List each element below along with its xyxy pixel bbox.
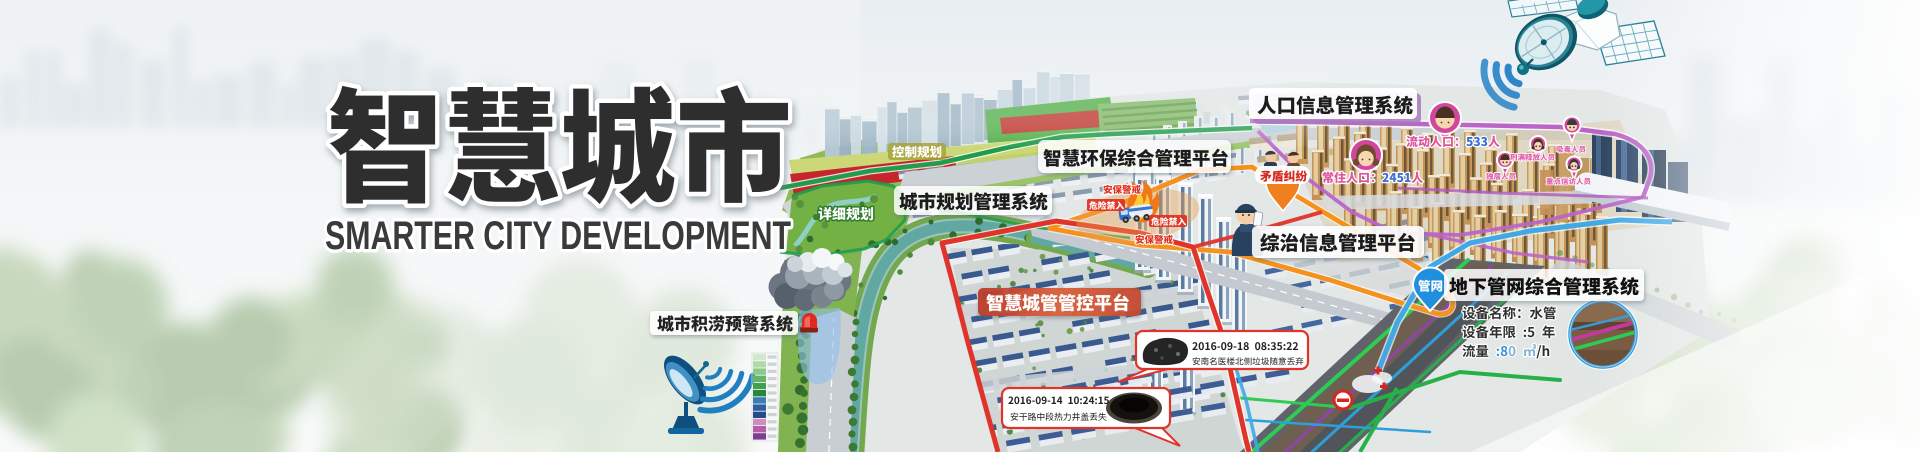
svg-text:SMARTER CITY DEVELOPMENT: SMARTER CITY DEVELOPMENT	[325, 214, 791, 258]
